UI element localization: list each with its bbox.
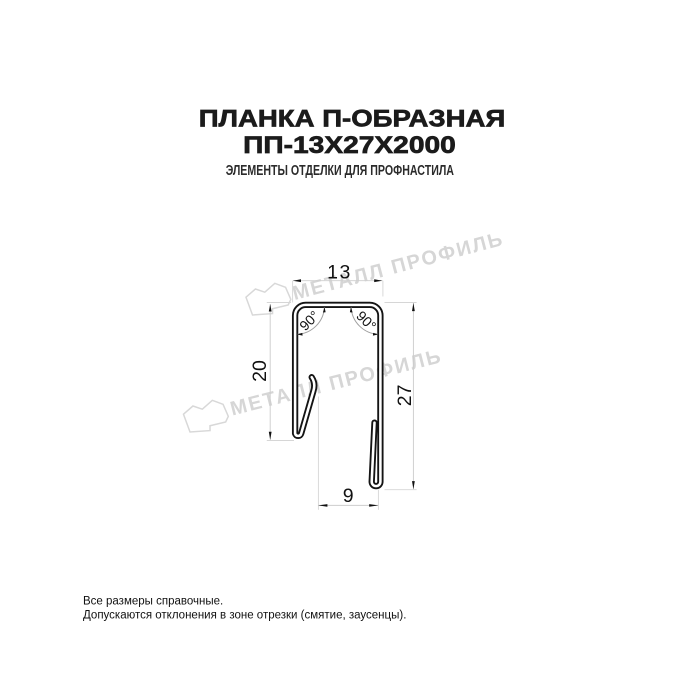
svg-text:9: 9 xyxy=(343,485,354,507)
svg-text:13: 13 xyxy=(327,261,350,283)
svg-text:Допускаются отклонения в зоне: Допускаются отклонения в зоне отрезки (с… xyxy=(83,609,406,621)
svg-text:ПП-13Х27Х2000: ПП-13Х27Х2000 xyxy=(243,132,456,159)
svg-text:27: 27 xyxy=(394,385,416,407)
svg-text:ЭЛЕМЕНТЫ ОТДЕЛКИ ДЛЯ ПРОФНАСТИ: ЭЛЕМЕНТЫ ОТДЕЛКИ ДЛЯ ПРОФНАСТИЛА xyxy=(226,163,454,179)
svg-text:20: 20 xyxy=(249,360,271,382)
svg-text:Все размеры справочные.: Все размеры справочные. xyxy=(83,595,223,607)
svg-text:ПЛАНКА П-ОБРАЗНАЯ: ПЛАНКА П-ОБРАЗНАЯ xyxy=(199,105,506,132)
